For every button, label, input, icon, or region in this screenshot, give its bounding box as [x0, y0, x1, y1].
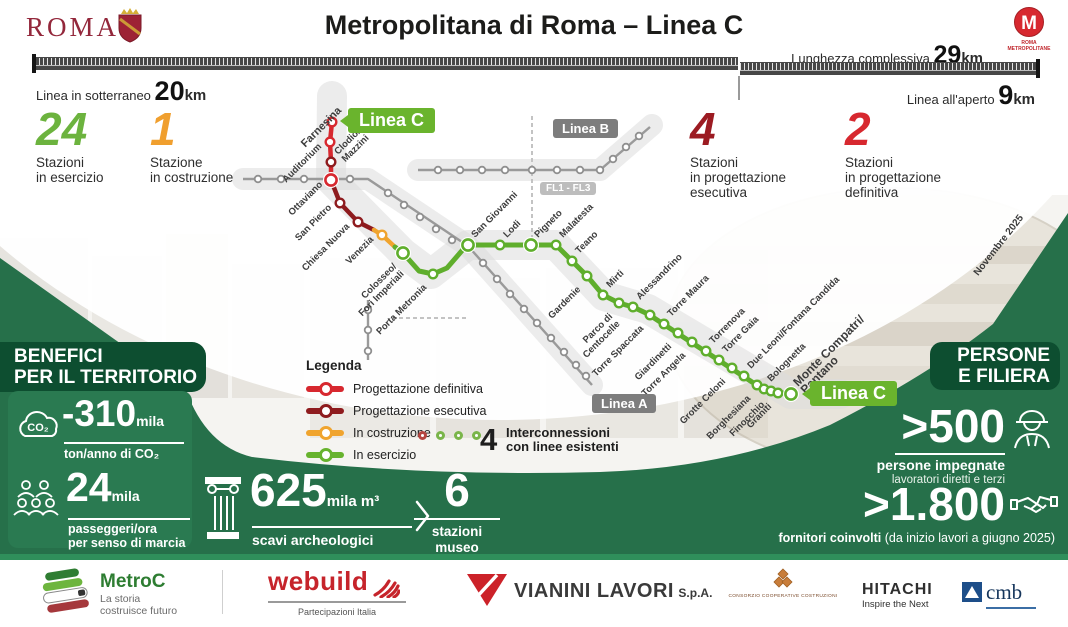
legend-label: Progettazione esecutiva [353, 404, 486, 418]
esecutiva-swatch-icon [306, 408, 344, 414]
workers-caption: persone impegnate [860, 457, 1005, 473]
ruler-right-cap [1036, 59, 1040, 78]
underline [252, 526, 412, 528]
open-air-ruler [740, 62, 1036, 75]
roma-metropolitane-logo: M ROMA METROPOLITANE [1004, 4, 1060, 54]
webuild-logo: webuild Partecipazioni Italia [268, 568, 406, 617]
ccc-emblem-icon [772, 568, 794, 592]
stat-value: 24 [36, 110, 104, 149]
museums-caption: stazioni museo [410, 524, 504, 555]
underground-ruler [35, 57, 738, 70]
underline [895, 453, 1005, 455]
passengers-caption: passeggeri/ora per senso di marcia [68, 522, 185, 551]
open-air-length-label: Linea all'aperto 9km [907, 80, 1035, 111]
underline [68, 518, 190, 520]
interconnection-ring-icon [436, 431, 445, 440]
costruzione-swatch-icon [306, 430, 344, 436]
ruler-split-tick [738, 76, 740, 100]
stat-progettazione-definitiva: 2 Stazioni in progettazione definitiva [845, 110, 941, 200]
ruler-left-cap [32, 54, 36, 73]
vianini-triangle-icon [466, 572, 508, 610]
metroc-logo-icon [40, 568, 94, 618]
stat-progettazione-esecutiva: 4 Stazioni in progettazione esecutiva [690, 110, 786, 200]
stat-label: Stazioni in progettazione definitiva [845, 155, 941, 200]
vianini-text: VIANINI LAVORI S.p.A. [514, 580, 712, 603]
svg-text:METROPOLITANE: METROPOLITANE [1008, 46, 1052, 52]
stat-value: 4 [690, 110, 786, 149]
svg-text:M: M [1021, 13, 1037, 34]
legend-title: Legenda [306, 358, 606, 373]
handshake-icon [1010, 488, 1058, 522]
footer-divider [222, 570, 223, 614]
underline [64, 442, 184, 444]
legend-item: Progettazione definitiva [306, 378, 606, 400]
stat-value: 2 [845, 110, 941, 149]
vianini-name: VIANINI LAVORI [514, 580, 674, 602]
co2-caption: ton/anno di CO₂ [64, 447, 159, 461]
passengers-icon [12, 475, 62, 521]
stat-value: 1 [150, 110, 233, 149]
linea-c-tag-top: Linea C [348, 108, 435, 133]
workers-value: >500 [860, 406, 1005, 447]
persone-panel-title: PERSONE E FILIERA [930, 342, 1060, 390]
museums-block: 6 stazioni museo [410, 470, 504, 555]
page-title: Metropolitana di Roma – Linea C [0, 10, 1068, 41]
stat-label: Stazioni in progettazione esecutiva [690, 155, 786, 200]
hitachi-logo: HITACHI Inspire the Next [862, 582, 933, 610]
legend-item: Progettazione esecutiva [306, 400, 606, 422]
museums-value: 6 [410, 470, 504, 511]
underline [414, 518, 500, 520]
metroc-tagline: La storia costruisce futuro [100, 593, 177, 617]
metroc-name: MetroC [100, 572, 177, 591]
cmb-rule [986, 607, 1036, 609]
cmb-mark-icon [962, 582, 982, 602]
hitachi-name: HITACHI [862, 582, 933, 598]
stat-in-costruzione: 1 Stazione in costruzione [150, 110, 233, 185]
metroc-text: MetroC La storia costruisce futuro [100, 572, 177, 617]
column-icon [202, 476, 244, 544]
fl-lines-tag: FL1 - FL3 [540, 182, 596, 195]
webuild-fan-icon [372, 568, 400, 598]
worker-helmet-icon [1008, 404, 1056, 454]
cmb-text: cmb [986, 582, 1036, 609]
linea-b-tag: Linea B [553, 119, 618, 138]
stat-label: Stazioni in esercizio [36, 155, 104, 185]
stat-in-esercizio: 24 Stazioni in esercizio [36, 110, 104, 185]
legend-label: In esercizio [353, 448, 416, 462]
webuild-subtitle: Partecipazioni Italia [268, 607, 406, 617]
suppliers-caption: fornitori coinvolti (da inizio lavori a … [745, 531, 1055, 545]
linea-c-tag-end: Linea C [810, 381, 897, 406]
suppliers-value: >1.800 [830, 484, 1005, 525]
interconnection-ring-icon [418, 431, 427, 440]
webuild-rule [268, 601, 406, 603]
interconnection-ring-icon [454, 431, 463, 440]
excavations-value: 625mila m³ [250, 470, 379, 511]
ccc-name: CONSORZIO COOPERATIVE COSTRUZIONI [728, 594, 838, 599]
interconnections-label: Interconnessioni con linee esistenti [506, 426, 619, 455]
esercizio-swatch-icon [306, 452, 344, 458]
footer: MetroC La storia costruisce futuro webui… [0, 560, 1068, 627]
webuild-name: webuild [268, 568, 368, 594]
benefici-panel-title: BENEFICI PER IL TERRITORIO [0, 342, 206, 392]
passengers-value: 24mila [66, 469, 140, 506]
cmb-name: cmb [986, 580, 1022, 604]
co2-value: -310mila [62, 397, 164, 430]
stat-label: Stazione in costruzione [150, 155, 233, 185]
vianini-suffix: S.p.A. [678, 586, 712, 600]
exc-caption: scavi archeologici [252, 532, 373, 548]
definitiva-swatch-icon [306, 386, 344, 392]
benefici-panel: CO₂ -310mila ton/anno di CO₂ 24mila pass… [8, 391, 192, 548]
hitachi-tagline: Inspire the Next [862, 599, 933, 610]
infographic-canvas: FarnesinaAuditoriumClodio/MazziniOttavia… [0, 0, 1068, 627]
interconnections-count: 4 [480, 422, 497, 458]
svg-text:CO₂: CO₂ [27, 422, 49, 434]
legend-label: Progettazione definitiva [353, 382, 483, 396]
co2-cloud-icon: CO₂ [14, 403, 62, 445]
